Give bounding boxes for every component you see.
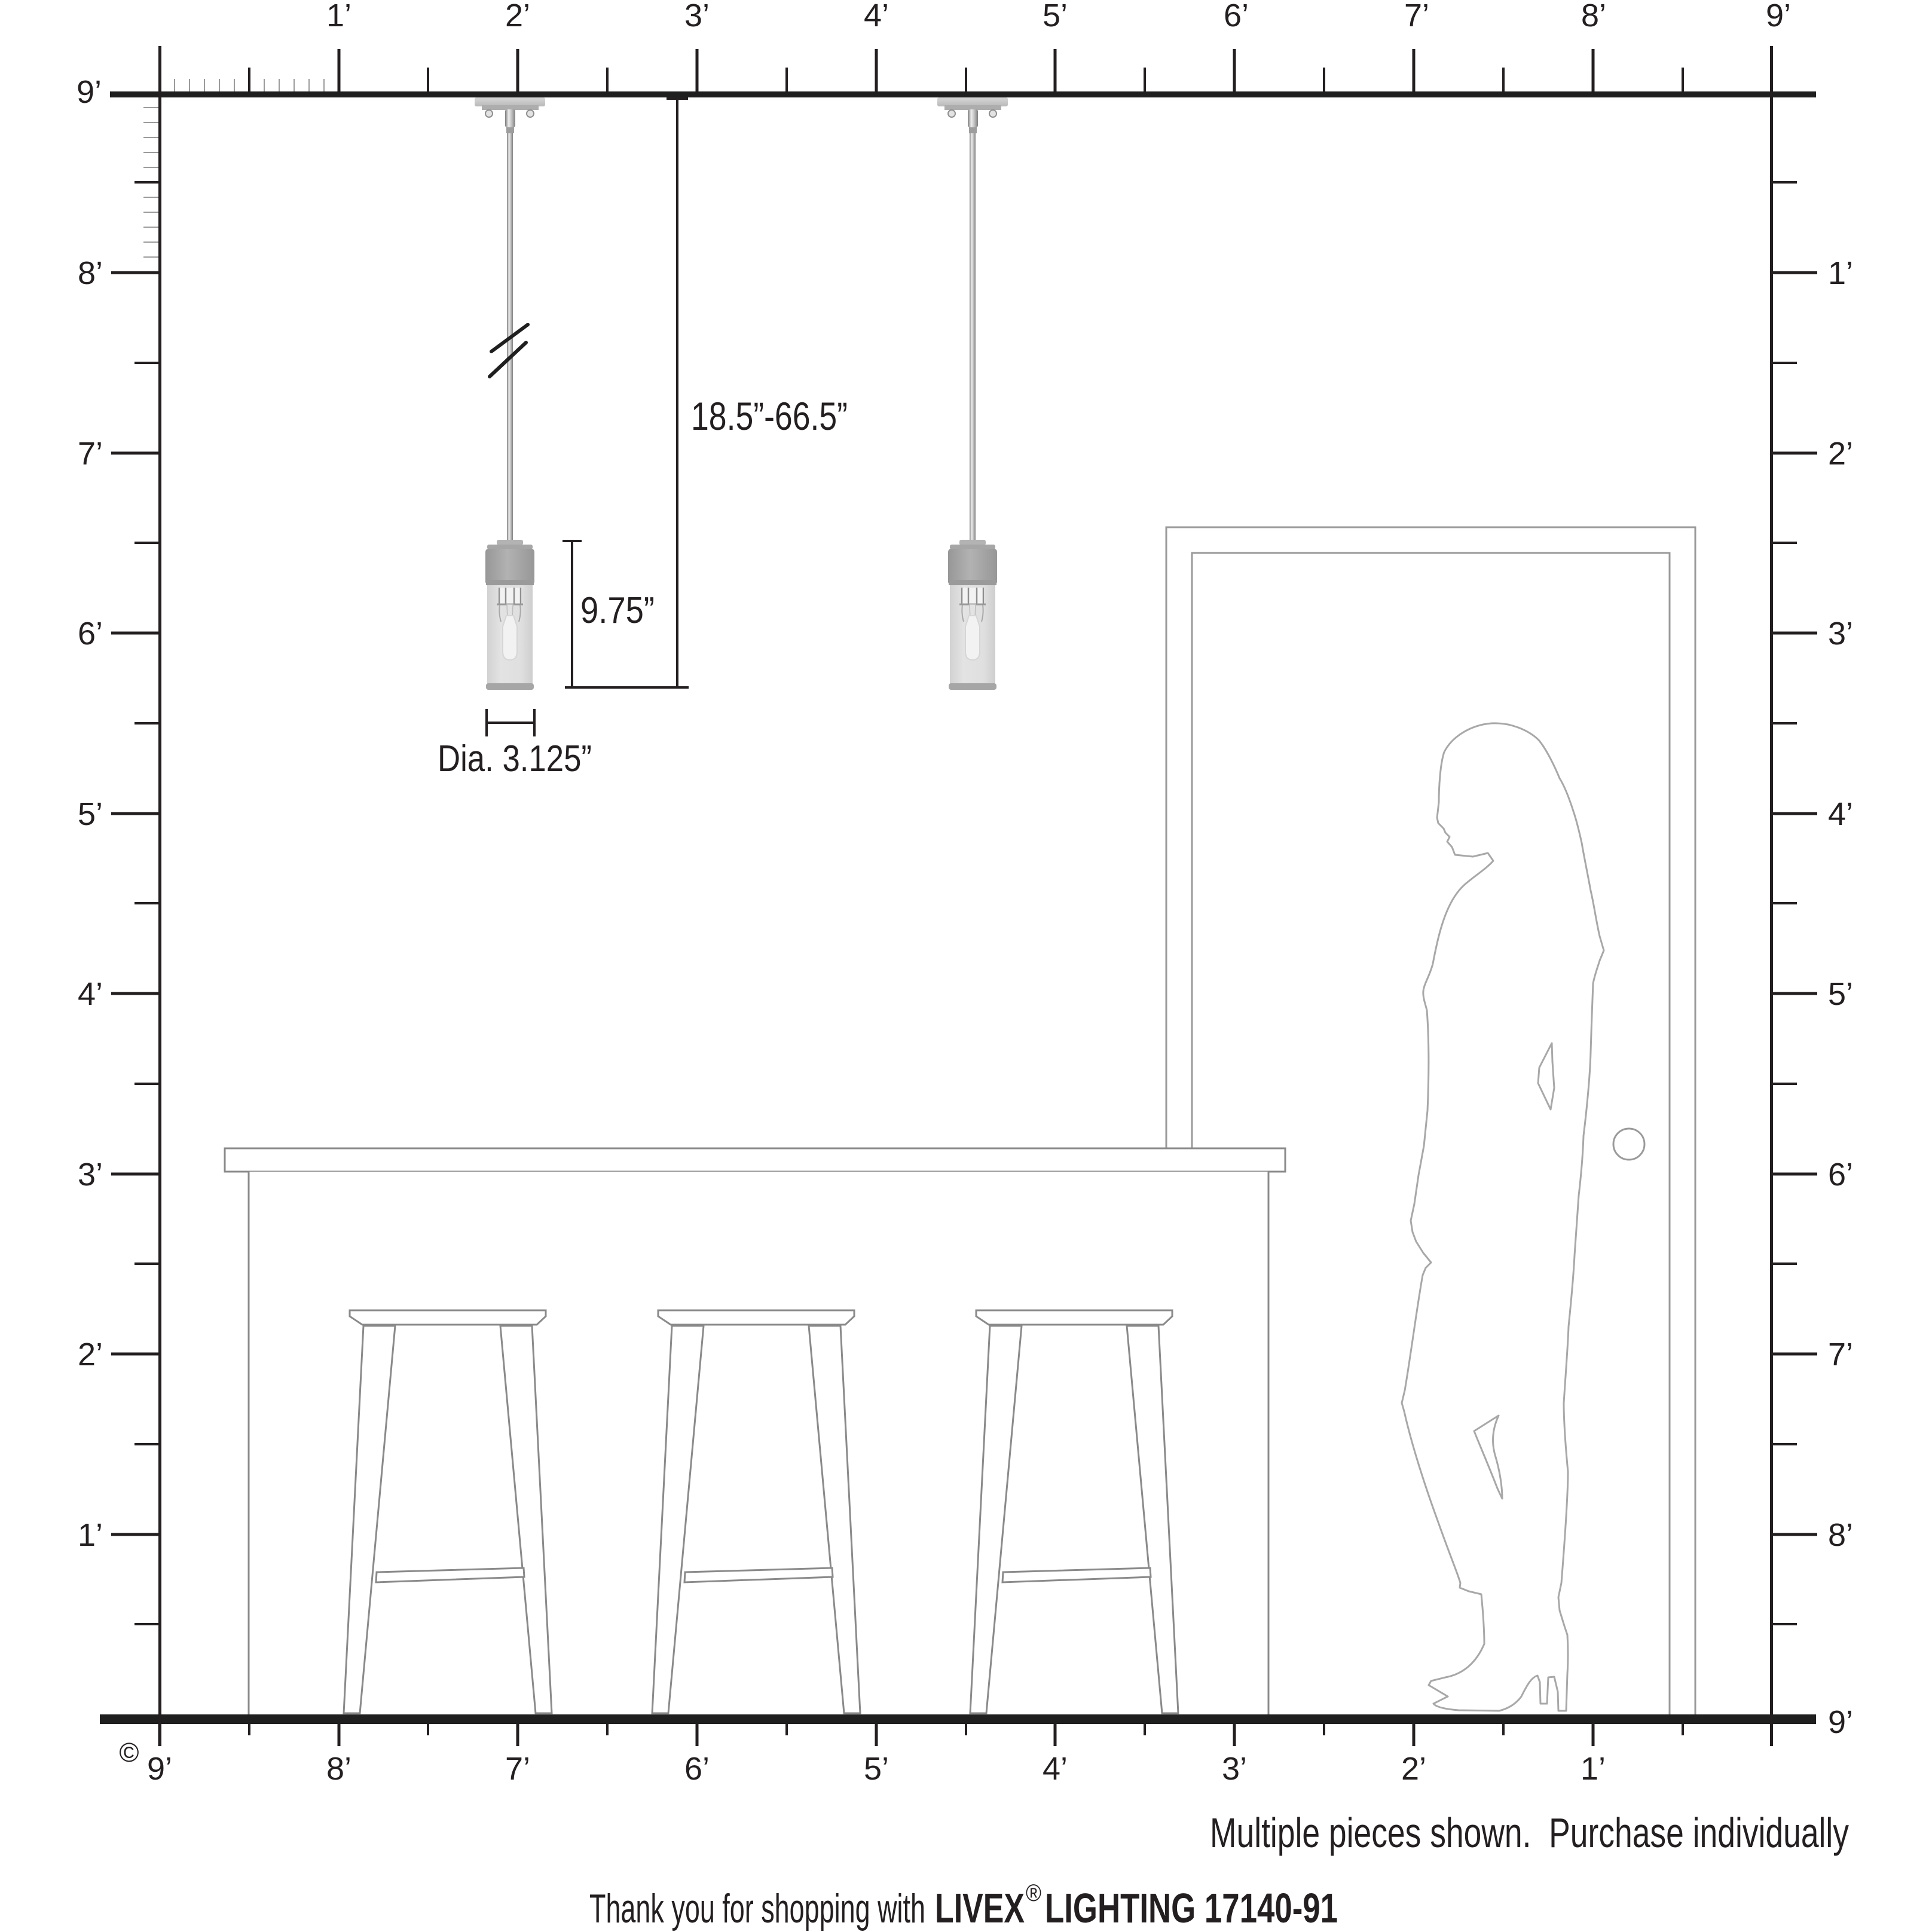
svg-text:4’: 4’	[1043, 1751, 1068, 1787]
svg-text:3’: 3’	[684, 0, 710, 33]
svg-text:3’: 3’	[78, 1157, 103, 1193]
svg-text:5’: 5’	[864, 1751, 889, 1787]
svg-text:8’: 8’	[1581, 0, 1606, 33]
svg-text:6’: 6’	[684, 1751, 710, 1787]
svg-text:LIVEX: LIVEX	[935, 1885, 1025, 1931]
svg-text:LIGHTING 17140-91: LIGHTING 17140-91	[1045, 1885, 1338, 1931]
svg-text:7’: 7’	[505, 1751, 530, 1787]
svg-text:1’: 1’	[1828, 255, 1853, 291]
svg-text:8’: 8’	[1828, 1517, 1853, 1553]
svg-text:6’: 6’	[78, 616, 103, 652]
svg-text:©: ©	[119, 1737, 139, 1768]
svg-text:4’: 4’	[1828, 796, 1853, 832]
svg-text:5’: 5’	[1043, 0, 1068, 33]
svg-text:6’: 6’	[1224, 0, 1249, 33]
svg-text:9’: 9’	[1828, 1704, 1853, 1740]
svg-text:7’: 7’	[78, 436, 103, 472]
svg-text:3’: 3’	[1828, 616, 1853, 652]
svg-text:18.5”-66.5”: 18.5”-66.5”	[691, 394, 848, 438]
svg-text:9’: 9’	[147, 1751, 172, 1787]
svg-text:4’: 4’	[864, 0, 889, 33]
svg-text:2’: 2’	[505, 0, 530, 33]
svg-text:2’: 2’	[1401, 1751, 1426, 1787]
svg-text:9’: 9’	[1766, 0, 1791, 33]
svg-text:9.75”: 9.75”	[580, 590, 655, 631]
svg-text:1’: 1’	[78, 1517, 103, 1553]
svg-text:Dia. 3.125”: Dia. 3.125”	[438, 738, 592, 779]
svg-text:Multiple pieces shown. Purcha: Multiple pieces shown. Purchase individu…	[1210, 1809, 1849, 1856]
svg-text:3’: 3’	[1222, 1751, 1247, 1787]
svg-text:®: ®	[1026, 1880, 1041, 1906]
svg-text:5’: 5’	[78, 796, 103, 832]
svg-text:6’: 6’	[1828, 1157, 1853, 1193]
svg-text:5’: 5’	[1828, 976, 1853, 1012]
svg-text:8’: 8’	[78, 255, 103, 291]
svg-text:9’: 9’	[77, 74, 102, 110]
svg-text:8’: 8’	[326, 1751, 351, 1787]
svg-text:4’: 4’	[78, 976, 103, 1012]
svg-text:7’: 7’	[1828, 1337, 1853, 1372]
svg-text:7’: 7’	[1404, 0, 1429, 33]
svg-text:Thank you for shopping with: Thank you for shopping with	[589, 1886, 925, 1931]
svg-text:2’: 2’	[1828, 436, 1853, 472]
svg-text:2’: 2’	[78, 1337, 103, 1372]
svg-text:1’: 1’	[1581, 1751, 1606, 1787]
svg-text:1’: 1’	[326, 0, 351, 33]
